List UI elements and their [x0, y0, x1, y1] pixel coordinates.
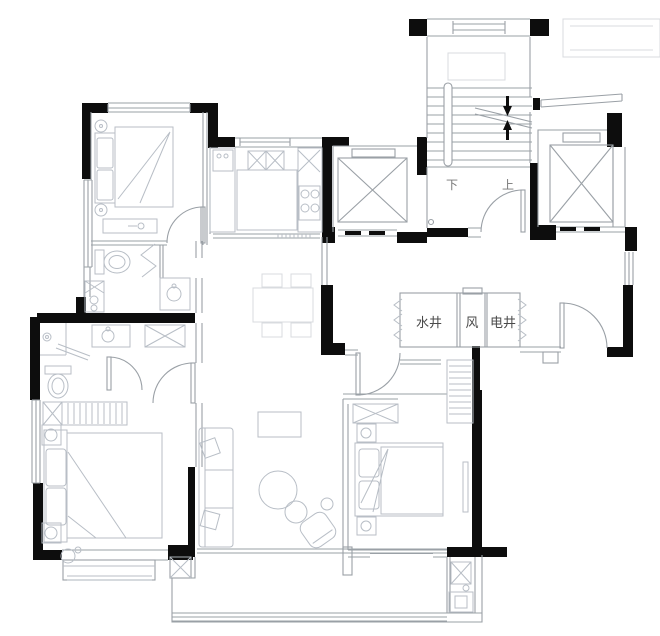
kitchen-counter-left — [210, 148, 235, 232]
lamp — [95, 120, 107, 132]
lamp — [361, 428, 371, 438]
stair-arrow-down-icon — [503, 96, 512, 116]
stair-up-label: 上 — [502, 178, 514, 192]
wardrobe — [43, 402, 127, 425]
entry-door — [560, 303, 607, 348]
bath-cabinet — [85, 281, 104, 312]
wardrobe-x — [353, 404, 398, 423]
louver-window — [541, 94, 622, 107]
stair-handrail — [444, 83, 452, 166]
floor-plan-svg: 下 上 水井 风 电井 — [0, 0, 660, 636]
bathroom-master — [40, 323, 185, 398]
stair-landing-door — [481, 190, 525, 232]
stair-down-label: 下 — [446, 178, 458, 192]
lamp — [45, 429, 57, 441]
cushion — [200, 438, 221, 459]
bed — [67, 433, 162, 538]
wash-basin — [160, 278, 190, 310]
master-bedroom-door — [153, 363, 195, 403]
water-shaft-label: 水井 — [416, 316, 442, 331]
shoe-cabinet — [447, 360, 473, 423]
vanity — [92, 325, 130, 347]
fridge — [213, 150, 233, 171]
bedroom-master — [42, 402, 162, 563]
toilet — [45, 366, 71, 398]
dining-table — [253, 288, 313, 322]
balcony — [170, 555, 482, 622]
kitchen-sink — [248, 151, 284, 170]
side-table — [285, 501, 307, 523]
floor-lamp — [321, 498, 333, 510]
dining-area — [253, 274, 313, 337]
toilet — [95, 250, 130, 274]
bed — [355, 443, 443, 516]
hall-dining-door — [356, 353, 400, 395]
nightstand — [357, 424, 376, 442]
stool — [61, 549, 75, 563]
master-bath-door — [107, 357, 142, 390]
coffee-table — [259, 471, 297, 509]
bedroom-top — [95, 120, 173, 233]
kitchen-island — [237, 170, 297, 230]
bathroom-top — [85, 250, 190, 312]
bedroom-right — [353, 360, 473, 535]
tv-panel — [463, 462, 468, 512]
living-room — [199, 412, 468, 551]
pillow — [46, 488, 66, 525]
mattress — [381, 447, 443, 514]
pillow — [359, 481, 379, 509]
balcony-column — [170, 557, 191, 578]
kitchen — [210, 148, 322, 232]
sofa — [199, 428, 233, 547]
elevator-right — [550, 133, 613, 231]
armchair — [297, 509, 339, 551]
kitchen-sliding-door — [213, 234, 320, 238]
vent-shaft-label: 风 — [465, 316, 478, 331]
pillow — [97, 170, 113, 200]
cabinet — [258, 412, 301, 437]
railing — [172, 613, 447, 621]
lamp — [45, 527, 57, 539]
pillow — [46, 449, 66, 486]
neighbor-unit-outline — [563, 19, 660, 57]
washing-machine — [449, 592, 473, 612]
stove — [299, 186, 320, 220]
floor-plan: 下 上 水井 风 电井 — [0, 0, 660, 636]
shower-folding-door — [141, 244, 156, 277]
bedroom-top-door — [167, 207, 205, 243]
laundry-sink — [451, 562, 471, 591]
electric-shaft-label: 电井 — [490, 316, 516, 331]
lamp — [361, 521, 371, 531]
pillow — [97, 138, 113, 168]
nightstand — [357, 517, 376, 535]
elevator-left — [338, 149, 407, 235]
cushion — [200, 510, 220, 530]
lamp — [95, 204, 107, 216]
storage-cabinet — [145, 325, 185, 347]
stairwell: 下 上 — [427, 53, 622, 192]
utility-shafts: 水井 风 电井 — [394, 288, 526, 347]
